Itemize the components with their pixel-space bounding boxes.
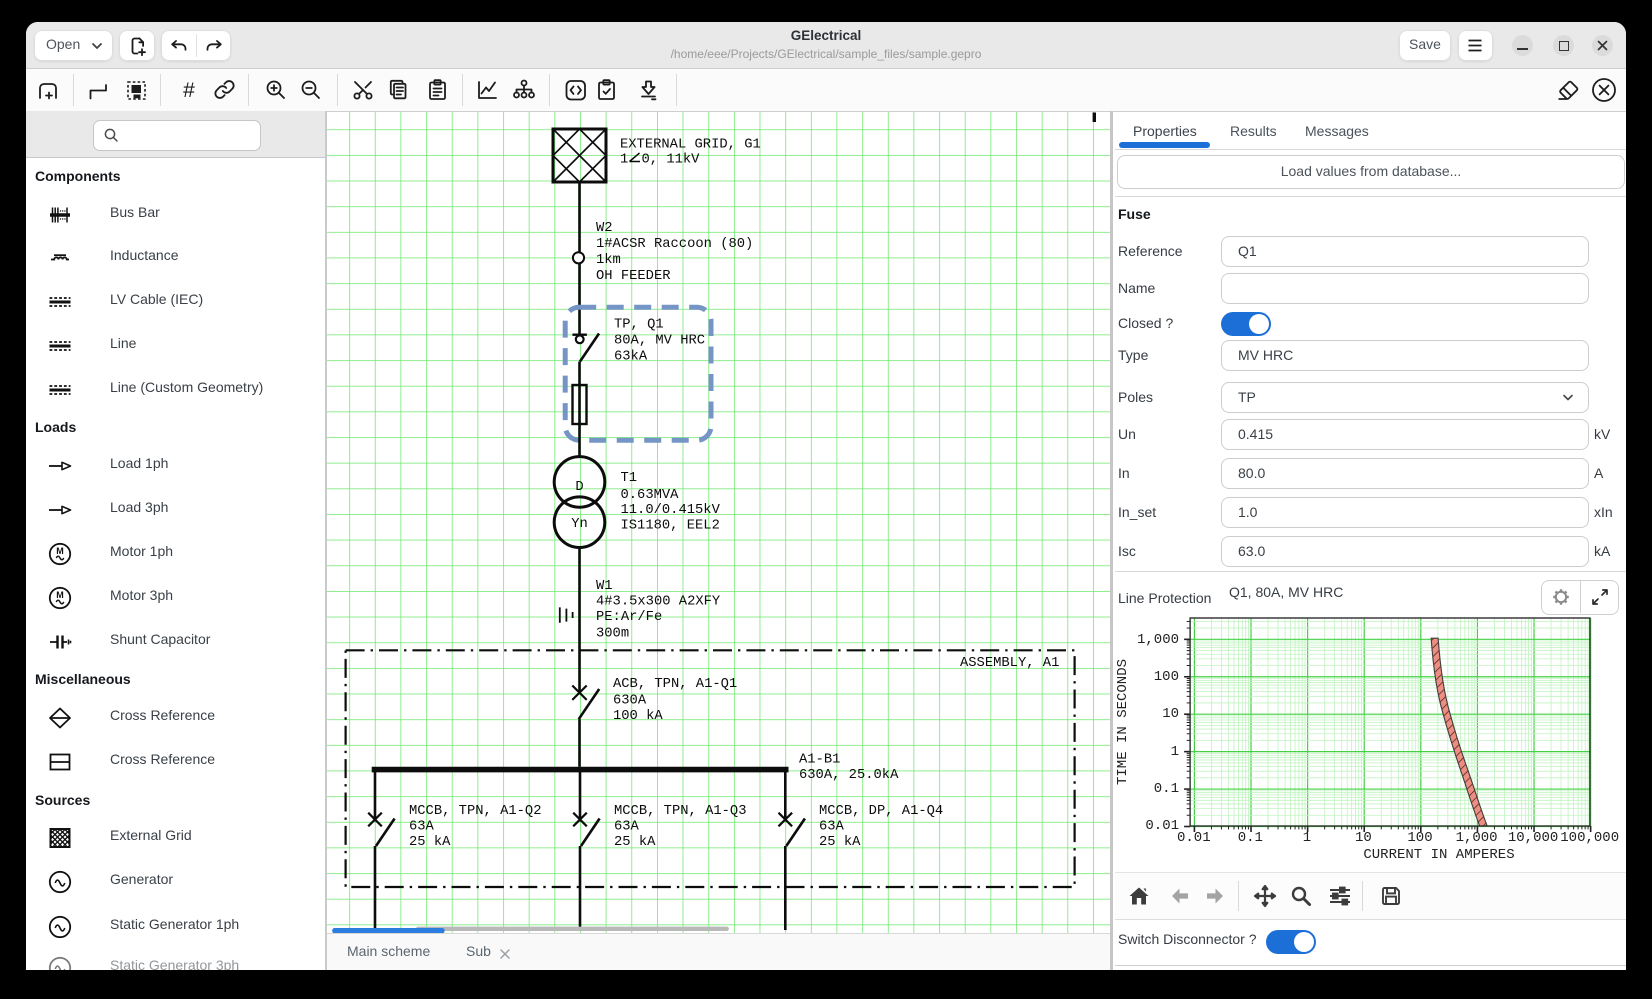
svg-text:300m: 300m — [596, 627, 629, 642]
svg-text:1#ACSR Raccoon (80): 1#ACSR Raccoon (80) — [596, 236, 753, 252]
svg-text:W2: W2 — [596, 221, 613, 236]
svg-text:EXTERNAL GRID, G1: EXTERNAL GRID, G1 — [620, 138, 761, 153]
svg-text:ACB, TPN, A1-Q1: ACB, TPN, A1-Q1 — [613, 677, 737, 692]
svg-text:4#3.5x300 A2XFY: 4#3.5x300 A2XFY — [596, 595, 721, 610]
svg-text:63A: 63A — [614, 820, 640, 835]
svg-text:A1-B1: A1-B1 — [799, 753, 840, 768]
svg-text:630A: 630A — [613, 694, 647, 709]
svg-text:11.0/0.415kV: 11.0/0.415kV — [621, 502, 721, 518]
svg-text:W1: W1 — [596, 579, 613, 594]
svg-text:80A, MV HRC: 80A, MV HRC — [614, 334, 705, 349]
svg-text:25 kA: 25 kA — [819, 834, 861, 850]
svg-text:1: 1 — [620, 153, 628, 168]
svg-text:MCCB, TPN, A1-Q3: MCCB, TPN, A1-Q3 — [614, 804, 746, 819]
svg-text:0, 11kV: 0, 11kV — [642, 152, 701, 168]
svg-text:0.63MVA: 0.63MVA — [621, 488, 680, 503]
svg-text:PE:Ar/Fe: PE:Ar/Fe — [596, 609, 662, 625]
svg-text:1km: 1km — [596, 252, 621, 268]
svg-text:T1: T1 — [621, 471, 638, 486]
svg-text:25 kA: 25 kA — [409, 834, 451, 850]
svg-text:100 kA: 100 kA — [613, 708, 663, 724]
svg-text:MCCB, DP, A1-Q4: MCCB, DP, A1-Q4 — [819, 804, 943, 819]
svg-text:Yn: Yn — [571, 517, 588, 532]
svg-text:#: # — [183, 79, 195, 102]
svg-text:D: D — [575, 480, 583, 495]
svg-text:63A: 63A — [409, 820, 435, 835]
svg-text:63A: 63A — [819, 820, 845, 835]
svg-text:ASSEMBLY, A1: ASSEMBLY, A1 — [960, 656, 1059, 671]
svg-text:63kA: 63kA — [614, 349, 648, 365]
svg-text:OH FEEDER: OH FEEDER — [596, 269, 671, 284]
svg-text:25 kA: 25 kA — [614, 834, 656, 850]
svg-text:IS1180, EEL2: IS1180, EEL2 — [621, 519, 720, 534]
svg-text:630A, 25.0kA: 630A, 25.0kA — [799, 767, 899, 783]
svg-text:TP, Q1: TP, Q1 — [614, 318, 664, 333]
svg-text:MCCB, TPN, A1-Q2: MCCB, TPN, A1-Q2 — [409, 804, 541, 819]
